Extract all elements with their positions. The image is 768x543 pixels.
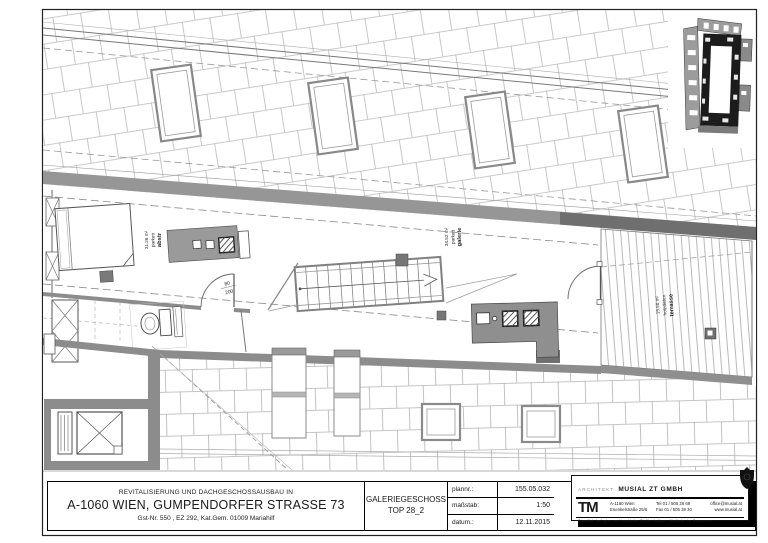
post-icon (437, 311, 446, 320)
architect-web: office@musial.at www.musial.at (708, 501, 742, 513)
drawing-name: GALERIEGESCHOSS (366, 495, 446, 506)
architect-stamp: ARCHITEKTMUSIAL ZT GMBH TM A-1160 Wien E… (571, 475, 749, 521)
meta-row-plannr: plannr.: 155.05.032 (448, 482, 554, 498)
room-label-terrasse: terrasse holzdielen 15.50 m² (655, 293, 676, 317)
svg-text:abstr: abstr (157, 232, 163, 247)
chimney-hatch-icon (52, 300, 78, 362)
dormer-window-icon (334, 350, 360, 436)
meta-label: maßstab: (448, 498, 498, 513)
svg-text:terrasse: terrasse (668, 293, 675, 317)
project-title-cell: REVITALISIERUNG UND DACHGESCHOSSAUSBAU I… (48, 482, 364, 530)
room-label-abstr: abstr parkett 31.26 m² (144, 230, 163, 249)
skylight-icon (422, 404, 460, 440)
svg-text:15.50 m²: 15.50 m² (655, 295, 661, 314)
roof-window-icon (308, 78, 358, 155)
svg-text:parkett: parkett (151, 232, 156, 247)
architect-address: A-1160 Wien Enenkelstraße 25/5 (610, 501, 656, 513)
bed-icon (55, 203, 134, 270)
nightstand-icon (100, 271, 114, 283)
meta-label: plannr.: (448, 482, 498, 497)
architect-certification: Staatlich befugter und beeideter Zivilte… (572, 518, 748, 524)
faucet-icon (492, 316, 497, 321)
floor-plan-drawing: 80 200 (0, 0, 768, 543)
meta-table: plannr.: 155.05.032 maßstab: 1:50 datum.… (447, 482, 554, 530)
meta-label: datum.: (448, 515, 498, 530)
meta-value: 155.05.032 (498, 482, 554, 497)
tm-logo: TM (578, 501, 610, 515)
svg-text:parkett: parkett (451, 229, 456, 244)
skylight-icon (522, 406, 560, 442)
terrace-fixture (705, 328, 716, 339)
architect-role: ARCHITEKT (578, 487, 614, 492)
meta-value: 12.11.2015 (498, 515, 554, 530)
project-parcel: Gst-Nr. 550 , EZ 292, Kat.Gem. 01009 Mar… (138, 515, 275, 523)
meta-value: 1:50 (498, 498, 554, 513)
sink-icon (477, 313, 490, 324)
roof-window-icon (465, 92, 515, 169)
post-icon (396, 254, 408, 266)
dormer-window-icon (272, 348, 306, 438)
drawing-name-cell: GALERIEGESCHOSS TOP 28_2 (364, 482, 447, 530)
wall-niche (44, 334, 55, 354)
elevator-icon (58, 412, 122, 454)
project-subtitle: REVITALISIERUNG UND DACHGESCHOSSAUSBAU I… (119, 489, 293, 497)
meta-row-massstab: maßstab: 1:50 (448, 498, 554, 514)
svg-text:31.26 m²: 31.26 m² (144, 230, 149, 249)
svg-text:galerie: galerie (457, 227, 463, 246)
project-address: A-1060 WIEN, GUMPENDORFER STRASSE 73 (67, 498, 344, 514)
meta-row-datum: datum.: 12.11.2015 (448, 515, 554, 530)
plan-sheet: 80 200 (0, 0, 768, 543)
roof-window-icon (151, 65, 201, 142)
architect-firm: MUSIAL ZT GMBH (618, 486, 683, 493)
drawing-unit: TOP 28_2 (388, 506, 424, 517)
svg-text:34.52 m²: 34.52 m² (444, 227, 449, 246)
stamp-header: ARCHITEKTMUSIAL ZT GMBH (572, 476, 748, 496)
architect-phone: Tel 01 / 505 26 69 Fax 01 / 505 39 30 (656, 501, 708, 513)
roof-window-icon (618, 106, 668, 183)
stamp-body: TM A-1160 Wien Enenkelstraße 25/5 Tel 01… (572, 501, 748, 515)
